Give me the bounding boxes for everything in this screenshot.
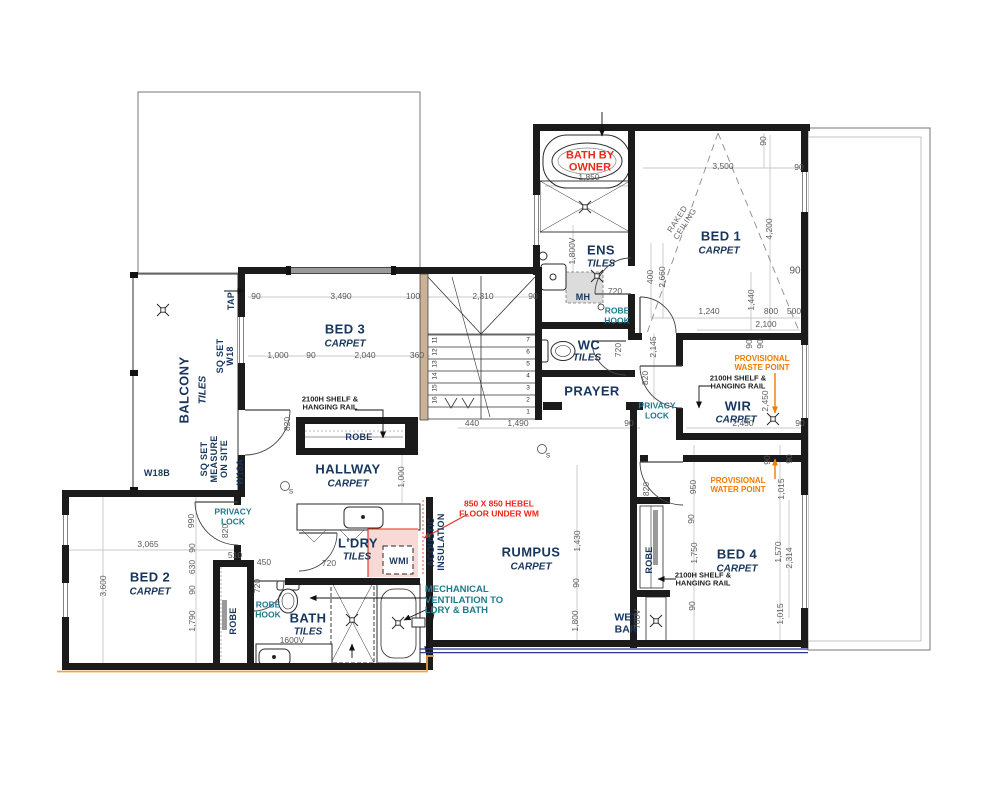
stair-tread-number: 3	[526, 384, 530, 391]
dim-label: 90	[763, 455, 773, 464]
dim-label: 700V	[633, 609, 643, 629]
dim-label: 1,800V	[568, 238, 578, 265]
dim-label: 630	[188, 560, 198, 574]
dim-label: 2,314	[785, 547, 795, 568]
dim-label: 90	[745, 339, 755, 348]
provisional-water-point-note: PROVISIONAL WATER POINT	[710, 477, 765, 495]
dim-label: 720	[253, 579, 263, 593]
room-label-bath: BATH	[290, 612, 327, 627]
shelf-rail-note: 2100H SHELF & HANGING RAIL	[675, 572, 731, 589]
room-label-bed2: BED 2	[130, 571, 170, 586]
dim-label: 3,065	[137, 540, 158, 550]
dim-label: 90	[528, 292, 537, 302]
stair-tread-number: 4	[526, 372, 530, 379]
dim-label: 90	[756, 339, 766, 348]
room-label-ens: ENS	[587, 244, 615, 259]
stair-balustrade	[420, 274, 428, 420]
dim-label: 2,450	[761, 390, 771, 411]
dim-label: 400	[646, 270, 656, 284]
stair-tread-number: 12	[431, 348, 438, 355]
dim-label: 90	[759, 136, 769, 145]
hebel-floor-note: 850 X 850 HEBEL FLOOR UNDER WM	[459, 499, 539, 518]
dim-label: 1,490	[507, 419, 528, 429]
room-finish-balcony: TILES	[197, 376, 208, 404]
dim-label: 820	[221, 524, 231, 538]
smoke-detector-label: S	[289, 488, 293, 495]
dim-label: 1,440	[747, 289, 757, 310]
room-label-hallway: HALLWAY	[315, 463, 380, 478]
dim-label: 3,500	[712, 162, 733, 172]
dim-label: 360	[410, 351, 424, 361]
room-finish-bed3: CARPET	[324, 338, 365, 349]
dim-label: 2,040	[354, 351, 375, 361]
dim-label: 1,850	[578, 173, 599, 183]
bath-by-owner-note: BATH BY OWNER	[566, 150, 614, 175]
dim-label: 2,310	[472, 292, 493, 302]
robe-hook-label: ROBE HOOK	[255, 600, 281, 619]
floor-plan-sheet: BALCONY TILES BED 3 CARPET BED 2 CARPET …	[0, 0, 1000, 800]
dim-label: 90	[306, 351, 315, 361]
window-label-w18a: W18A	[235, 459, 245, 485]
stair-tread-number: 2	[526, 396, 530, 403]
dim-label: 1,000	[397, 466, 407, 487]
room-finish-bed1: CARPET	[698, 245, 739, 256]
dim-label: 90	[789, 265, 800, 276]
shelf-rail-note: 2100H SHELF & HANGING RAIL	[302, 396, 358, 413]
robe-label: ROBE	[644, 546, 654, 573]
tap-label: TAP	[226, 292, 236, 310]
dim-label: 720	[614, 343, 624, 357]
dim-label: 820	[641, 371, 651, 385]
dim-label: 1600V	[280, 636, 305, 646]
dim-label: 3,600	[99, 575, 109, 596]
dim-label: 2,660	[658, 266, 668, 287]
dim-label: 3,490	[330, 292, 351, 302]
stair-tread-number: 13	[431, 360, 438, 367]
room-label-ldry: L'DRY	[338, 537, 378, 552]
room-label-bed1: BED 1	[701, 230, 741, 245]
dim-label: 1,800	[571, 610, 581, 631]
room-finish-ens: TILES	[587, 258, 615, 269]
stair-tread-number: 14	[431, 372, 438, 379]
dim-label: 500	[787, 307, 801, 317]
room-label-prayer: PRAYER	[564, 385, 619, 400]
dim-label: 990	[187, 514, 197, 528]
robe-label: ROBE	[345, 432, 372, 442]
room-finish-wc: TILES	[573, 352, 601, 363]
dim-label: 950	[689, 480, 699, 494]
room-finish-hallway: CARPET	[327, 478, 368, 489]
dim-label: 1,000	[267, 351, 288, 361]
stair-tread-number: 5	[526, 360, 530, 367]
dim-label: 90	[188, 543, 198, 552]
dim-label: 1,790	[188, 610, 198, 631]
dim-label: 90	[624, 419, 633, 429]
floor-plan-drawing	[0, 0, 1000, 800]
dim-label: 2,100	[755, 320, 776, 330]
dim-label: 90	[687, 514, 697, 523]
dim-label: 90	[794, 163, 803, 173]
room-label-balcony: BALCONY	[178, 356, 193, 423]
dim-label: 820	[283, 417, 293, 431]
privacy-lock-label: PRIVACY LOCK	[638, 401, 675, 420]
dim-label: 90	[795, 419, 804, 429]
robe-hook-label: ROBE HOOK	[604, 306, 630, 325]
provisional-waste-point-note: PROVISIONAL WASTE POINT	[734, 355, 789, 373]
dim-label: 90	[572, 578, 582, 587]
dim-label: 1,240	[698, 307, 719, 317]
mh-label: MH	[576, 292, 591, 302]
window-label-w18b: W18B	[144, 468, 170, 478]
dim-label: 1,430	[573, 530, 583, 551]
mech-vent-note: MECHANICAL VENTILATION TO LDRY & BATH	[425, 585, 503, 617]
dim-label: 4,200	[765, 218, 775, 239]
room-label-rumpus: RUMPUS	[502, 546, 561, 561]
stair-tread-number: 6	[526, 348, 530, 355]
dim-label: 90	[251, 292, 260, 302]
dim-label: 1,015	[776, 603, 786, 624]
room-finish-bed2: CARPET	[129, 586, 170, 597]
dim-label: 90	[785, 454, 795, 463]
dim-label: 450	[257, 558, 271, 568]
room-label-bed4: BED 4	[717, 548, 757, 563]
stair-tread-number: 1	[526, 408, 530, 415]
sq-set-w18-label: SQ SET W18	[215, 339, 235, 374]
dim-label: 800	[764, 307, 778, 317]
dim-label: 2,450	[732, 419, 753, 429]
dim-label: 100	[406, 292, 420, 302]
room-label-wir: WIR	[725, 400, 751, 415]
room-finish-ldry: TILES	[343, 551, 371, 562]
robe-label: ROBE	[228, 607, 238, 634]
acoustic-insulation-note: ACOUSTIC INSULATION	[426, 513, 446, 570]
wmi-label: WMI	[389, 556, 408, 566]
dim-label: 90	[688, 601, 698, 610]
shelf-rail-note: 2100H SHELF & HANGING RAIL	[710, 375, 766, 392]
stair-tread-number: 11	[431, 337, 438, 344]
sq-set-measure-label: SQ SET MEASURE ON SITE	[199, 435, 229, 482]
dim-label: 90	[188, 585, 198, 594]
stair-tread-number: 16	[431, 396, 438, 403]
room-finish-rumpus: CARPET	[510, 561, 551, 572]
dim-label: 440	[465, 419, 479, 429]
stair-tread-number: 15	[431, 384, 438, 391]
dim-label: 2,145	[649, 336, 659, 357]
stair-tread-number: 7	[526, 336, 530, 343]
dim-label: 720	[322, 559, 336, 569]
dim-label: 510	[228, 551, 242, 561]
dim-label: 820	[642, 482, 652, 496]
room-label-wc: WC	[578, 339, 600, 354]
dim-label: 1,570	[774, 541, 784, 562]
dim-label: 1,750	[690, 542, 700, 563]
smoke-detector-label: S	[546, 452, 550, 459]
room-label-bed3: BED 3	[325, 323, 365, 338]
dim-label: 720	[608, 287, 622, 297]
dim-label: 1,015	[777, 478, 787, 499]
